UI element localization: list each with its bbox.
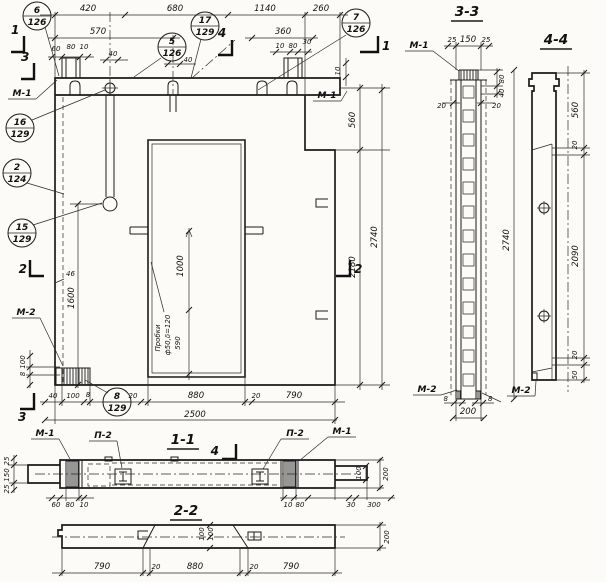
s33-dim-80: 80: [498, 74, 506, 83]
s33-label-m2: М-2: [418, 385, 437, 395]
callout-17-129: 17 129: [191, 12, 219, 78]
dim-2740: 2740: [370, 226, 380, 248]
dim-880: 880: [188, 391, 204, 401]
svg-text:126: 126: [347, 25, 366, 35]
section-mark-3-topleft: 3: [21, 50, 34, 79]
s22-dim-880: 880: [187, 562, 203, 572]
dim-46: 46: [66, 270, 75, 278]
s33-dim-20b: 20: [492, 102, 501, 110]
dim-1600: 1600: [67, 287, 77, 309]
svg-text:1: 1: [382, 39, 390, 53]
dim-790: 790: [286, 391, 302, 401]
dim-560: 560: [348, 112, 358, 128]
section-mark-3-bottomleft: 3: [18, 393, 34, 424]
s11-label-m1-left: М-1: [36, 429, 55, 439]
s11-dim-200: 200: [382, 467, 390, 481]
s11-dim-300: 300: [367, 501, 381, 509]
dim-80: 80: [67, 43, 76, 51]
dim-40-bottom: 40: [49, 392, 58, 400]
s44-dim-20a: 20: [571, 140, 579, 149]
anchor-circle-icon: [103, 197, 117, 211]
svg-text:3: 3: [21, 50, 29, 64]
svg-text:5: 5: [169, 37, 175, 47]
svg-text:16: 16: [14, 118, 27, 128]
dim-10-rot: 10: [334, 66, 342, 75]
dim-590: 590: [174, 336, 182, 350]
svg-text:17: 17: [199, 16, 212, 26]
s33-dim-8a: 8: [444, 395, 449, 403]
svg-text:126: 126: [163, 49, 182, 59]
svg-text:126: 126: [28, 18, 47, 28]
s22-dim-790b: 790: [283, 562, 299, 572]
label-m2-left: М-2: [17, 308, 36, 318]
svg-text:8: 8: [114, 392, 120, 402]
dim-100-left: 100: [19, 355, 27, 369]
main-elevation-view: 420 680 1140 260 570 360 60 80 10 40 40 …: [8, 4, 390, 424]
svg-text:1: 1: [11, 23, 19, 37]
svg-text:3: 3: [18, 410, 26, 424]
svg-text:129: 129: [108, 404, 127, 414]
svg-text:129: 129: [196, 28, 215, 38]
s33-label-m1: М-1: [410, 41, 429, 51]
s11-dim-80: 80: [66, 501, 75, 509]
dim-60: 60: [52, 45, 61, 53]
dim-680: 680: [167, 4, 183, 14]
s22-dim-100a: 100: [198, 527, 206, 541]
label-m1-right: М-1: [318, 91, 337, 101]
dim-1000: 1000: [176, 255, 186, 277]
section-3-3-view: 3-3 25 150 25 20 20 80 40 2740 8 8 200 М…: [405, 4, 517, 421]
dim-80b: 80: [289, 42, 298, 50]
dim-360: 360: [275, 27, 291, 37]
svg-text:2: 2: [354, 262, 362, 276]
s33-dim-2740: 2740: [502, 229, 512, 251]
s22-dim-790a: 790: [94, 562, 110, 572]
svg-text:2: 2: [14, 163, 20, 173]
s33-dim-20a: 20: [437, 102, 446, 110]
blueprint-page: 420 680 1140 260 570 360 60 80 10 40 40 …: [0, 0, 606, 582]
section-mark-2-left: 2: [19, 260, 44, 276]
s11-dim-25b: 25: [3, 484, 11, 493]
svg-text:124: 124: [8, 175, 27, 185]
note-probki-line1: Пробки: [154, 324, 162, 352]
s11-label-p2-right: П-2: [286, 429, 304, 439]
section-2-2-view: 2-2 100 100 200 790 20 880 20 790: [52, 503, 391, 576]
s44-label-m2: М-2: [512, 386, 531, 396]
s22-dim-200: 200: [383, 530, 391, 544]
svg-text:4: 4: [210, 444, 219, 458]
dim-20-bottom-b: 20: [252, 392, 261, 400]
s11-dim-10r: 10: [284, 501, 293, 509]
svg-text:6: 6: [34, 6, 40, 16]
dim-420: 420: [80, 4, 96, 14]
label-m1-left: М-1: [13, 89, 32, 99]
dim-10: 10: [80, 43, 89, 51]
s11-label-m1-right: М-1: [333, 427, 352, 437]
embedded-plate-m2: [56, 368, 90, 385]
s33-dim-200: 200: [460, 407, 476, 417]
svg-text:15: 15: [16, 223, 29, 233]
panel-working-drawing: 420 680 1140 260 570 360 60 80 10 40 40 …: [0, 0, 606, 582]
p2-insert-icon: [115, 469, 268, 484]
note-probki-line2: ф50,δ=120: [164, 314, 172, 355]
svg-text:129: 129: [13, 235, 32, 245]
callout-5-126: 5 126: [134, 33, 186, 77]
s11-dim-30: 30: [347, 501, 356, 509]
section-title-2-2: 2-2: [174, 503, 198, 519]
dim-40: 40: [109, 50, 118, 58]
section-mark-4-top: 4: [217, 26, 232, 55]
s11-dim-60: 60: [52, 501, 61, 509]
s22-dim-20a: 20: [152, 563, 161, 571]
section-1-1-view: 1-1 4 М-1 П-2 П-2 М-1 25 150 25: [3, 427, 395, 509]
s22-dim-20b: 20: [250, 563, 259, 571]
s33-dim-25a: 25: [448, 36, 457, 44]
s11-dim-80r: 80: [296, 501, 305, 509]
section-mark-1-topright: 1: [360, 36, 390, 53]
s33-dim-40: 40: [498, 88, 506, 97]
section-mark-2-right: 2: [336, 260, 362, 276]
s33-dim-25b: 25: [482, 36, 491, 44]
dim-1140: 1140: [254, 4, 276, 14]
s44-dim-50: 50: [571, 370, 579, 379]
svg-text:4: 4: [217, 26, 226, 40]
s11-dim-25a: 25: [3, 456, 11, 465]
dim-30: 30: [303, 38, 312, 46]
section-mark-1-topleft: 1: [11, 23, 24, 52]
dim-260: 260: [313, 4, 329, 14]
dim-570: 570: [90, 27, 106, 37]
s11-dim-10: 10: [80, 501, 89, 509]
s11-dim-100: 100: [355, 466, 363, 480]
svg-text:7: 7: [353, 13, 360, 23]
dim-8-left: 8: [19, 371, 27, 376]
s11-dim-150: 150: [3, 468, 11, 482]
s44-dim-560: 560: [571, 102, 581, 118]
dim-100-bottom: 100: [66, 392, 80, 400]
section-title-1-1: 1-1: [171, 432, 195, 448]
svg-text:2: 2: [19, 262, 27, 276]
s44-dim-20b: 20: [571, 350, 579, 359]
hole-icon: [537, 201, 551, 323]
s11-label-p2-left: П-2: [94, 431, 112, 441]
s44-dim-2090: 2090: [571, 245, 581, 267]
dim-40b: 40: [184, 56, 193, 64]
s33-dim-150: 150: [460, 35, 476, 45]
section-4-4-view: 4-4 560 20 2090 20 50 М-2: [507, 32, 590, 396]
svg-text:129: 129: [11, 130, 30, 140]
dim-8-bottom: 8: [86, 391, 91, 399]
dim-10b: 10: [276, 42, 285, 50]
dim-2500: 2500: [184, 410, 206, 420]
s22-dim-100b: 100: [207, 527, 215, 541]
section-mark-4-bottom: 4: [210, 444, 236, 459]
section-title-3-3: 3-3: [455, 4, 479, 20]
section-title-4-4: 4-4: [543, 32, 568, 48]
